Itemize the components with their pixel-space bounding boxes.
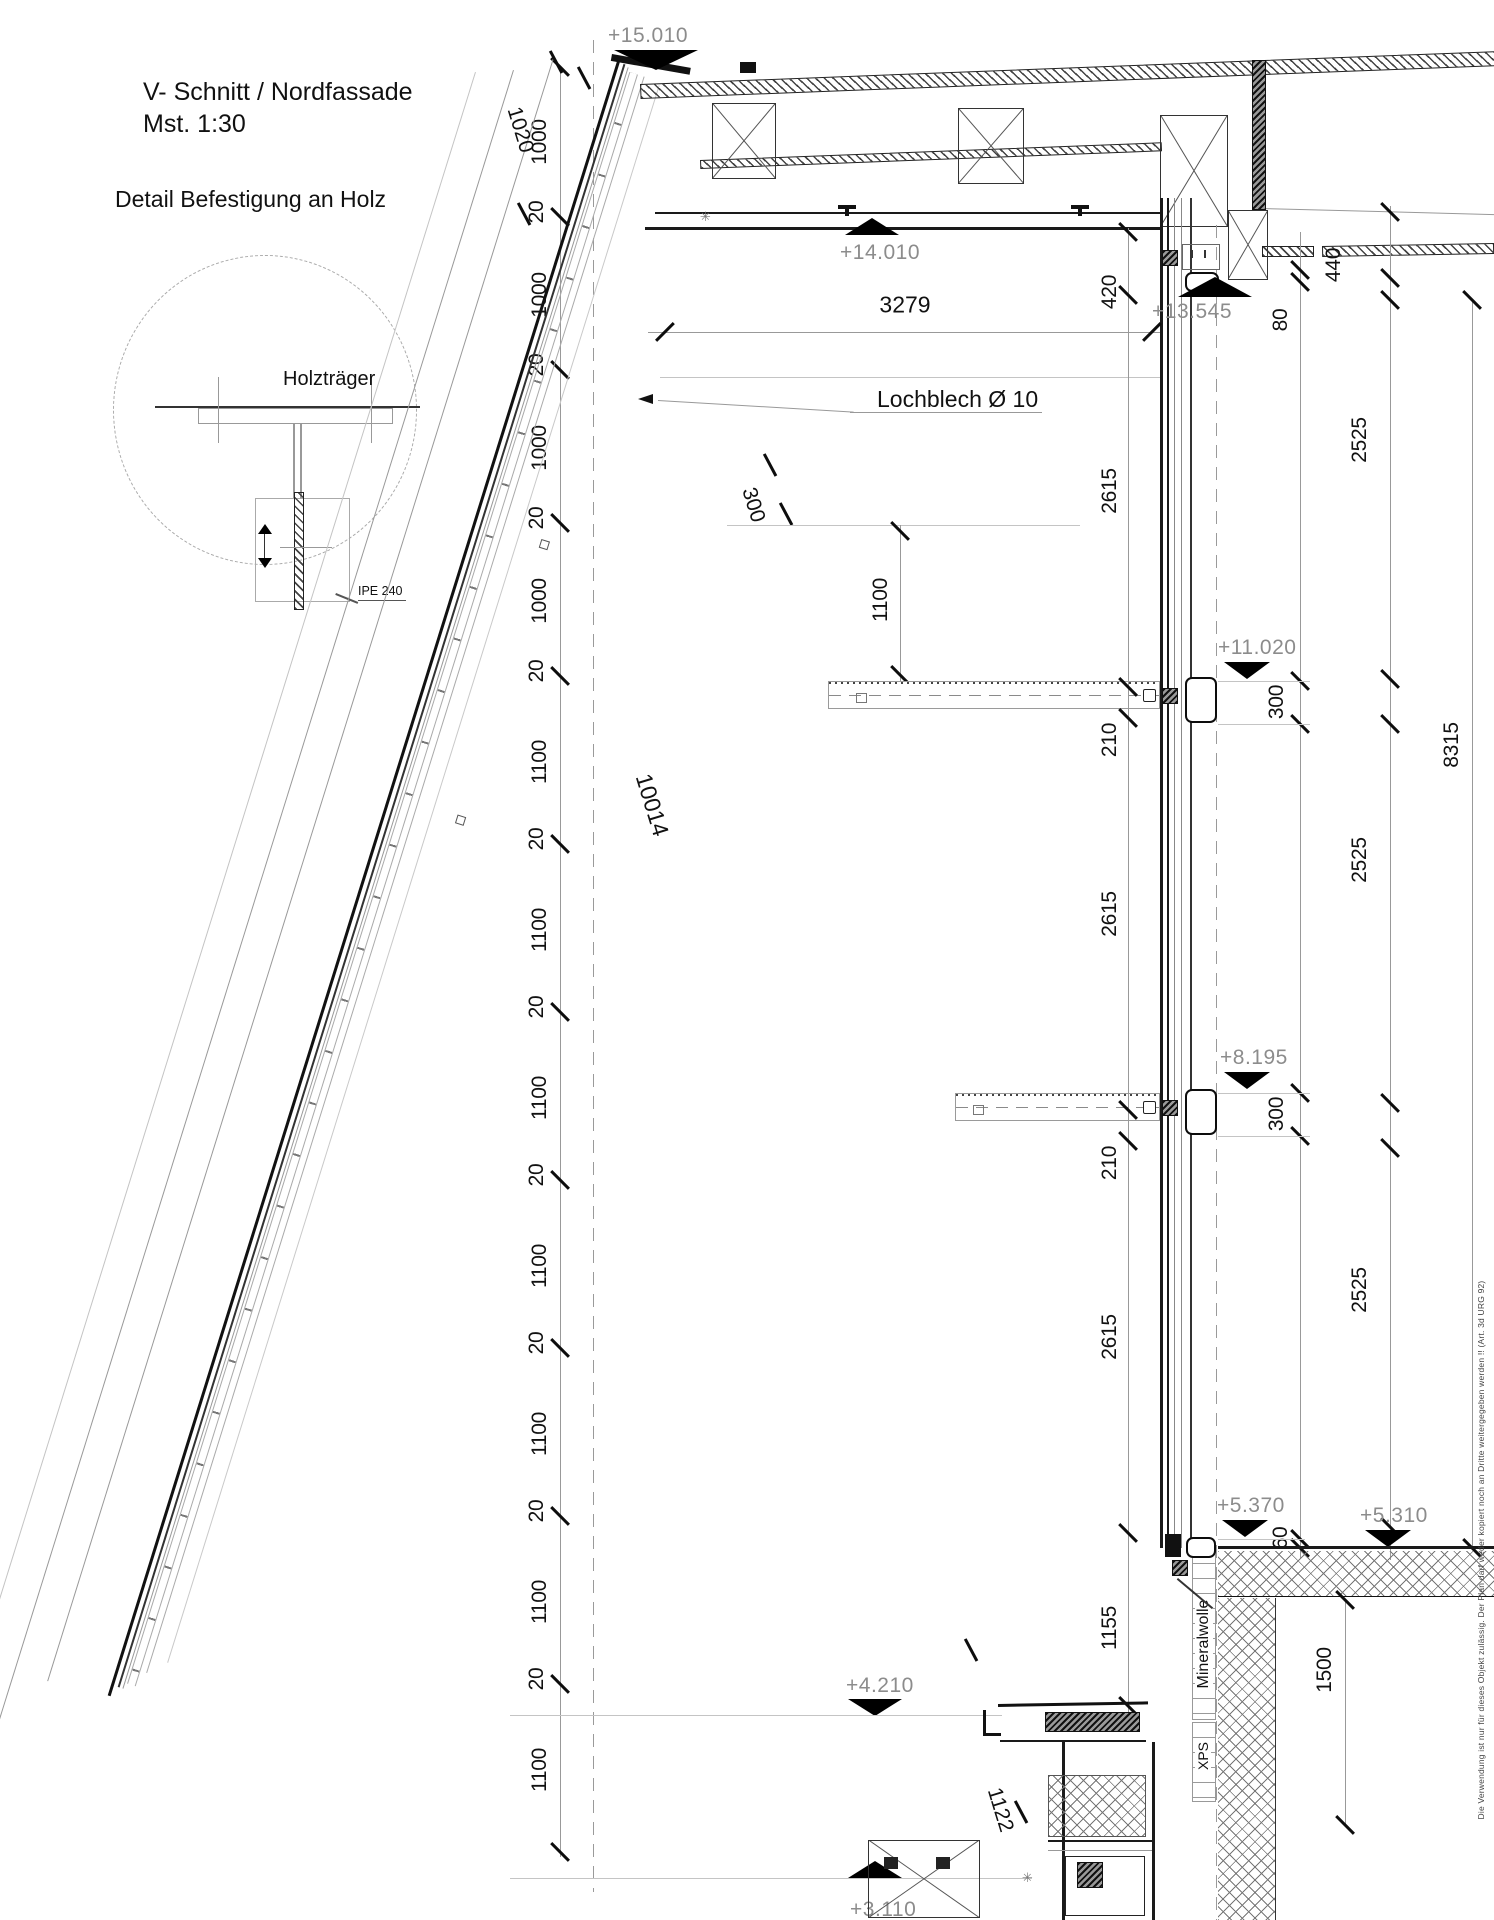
lochblech-label: Lochblech Ø 10 <box>877 386 1038 413</box>
ref-line-1100 <box>727 525 1080 526</box>
roof-line-right <box>1262 208 1494 215</box>
dim-inner: 2615 <box>1098 1314 1122 1360</box>
timber-section <box>712 103 776 179</box>
chain-dim: 1100 <box>528 1580 552 1624</box>
ceiling-clip-stem <box>1078 209 1082 216</box>
eave-block <box>740 62 756 73</box>
chain-dim: 1100 <box>528 1412 552 1456</box>
strut-end-detail <box>973 1105 984 1115</box>
chain-dim: 1100 <box>528 740 552 784</box>
dim-floors: 2525 <box>1348 837 1372 883</box>
level-line <box>1218 681 1310 682</box>
chain-dim: 1100 <box>528 1244 552 1288</box>
base-anchor <box>1077 1862 1103 1888</box>
fixing-rays-icon: ✳ <box>700 209 711 225</box>
section-title: V- Schnitt / Nordfassade <box>143 78 413 107</box>
sill-bottom-line <box>1000 1740 1146 1742</box>
dim-line-left-chain <box>560 67 561 1857</box>
base-block <box>936 1857 950 1869</box>
holztraeger-label: Holzträger <box>283 368 375 391</box>
chain-dim: 20 <box>525 1500 549 1523</box>
strut-bolt <box>1143 1101 1156 1114</box>
base-line <box>1048 1840 1152 1842</box>
elevation-marker <box>845 218 899 235</box>
dim-inner: 2615 <box>1098 891 1122 937</box>
slope-dim-1020: 1020 <box>502 104 539 156</box>
chain-dim: 20 <box>525 1668 549 1691</box>
dim-line-total <box>1472 300 1473 1548</box>
slope-dim-1122: 1122 <box>982 1785 1018 1835</box>
roof-sealing-band <box>640 51 1494 99</box>
xps-label: XPS <box>1195 1739 1211 1773</box>
dim-tick <box>964 1638 979 1662</box>
wallhead-dot <box>1204 250 1206 258</box>
dim-tick <box>763 453 778 477</box>
dim-line-inner <box>1128 228 1129 1715</box>
sill-profile <box>983 1710 1001 1736</box>
level-line <box>1218 1136 1310 1137</box>
elevation-marker <box>1222 1520 1268 1537</box>
floor-bracket <box>1165 1534 1181 1557</box>
fixing-bracket-mid2 <box>1185 1089 1217 1135</box>
timber-section <box>958 108 1024 184</box>
level-line <box>1218 724 1310 725</box>
parapet-hatch-strip <box>1252 60 1266 210</box>
chain-dim: 1000 <box>528 578 552 624</box>
base-timber-section <box>868 1840 980 1918</box>
wallhead-hatch-square <box>1162 250 1178 266</box>
level-line-sill <box>510 1715 1002 1716</box>
floor-slab-hatch <box>1218 1551 1494 1597</box>
dim-1100: 1100 <box>869 578 893 622</box>
dim-1500: 1500 <box>1313 1647 1337 1693</box>
dim-tick <box>779 502 794 526</box>
dim-inner: 210 <box>1098 1146 1122 1180</box>
strut-hatch-square <box>1162 1100 1178 1116</box>
slab-top-line <box>1218 1546 1494 1549</box>
level-line <box>1218 1093 1310 1094</box>
detail-axis-line <box>280 547 332 548</box>
strut-upper <box>828 681 1160 709</box>
vent-square <box>539 539 550 550</box>
strut-lower <box>955 1093 1160 1121</box>
chain-dim: 20 <box>525 996 549 1019</box>
chain-dim: 1100 <box>528 1076 552 1120</box>
chain-dim: 20 <box>525 828 549 851</box>
base-line-2 <box>1048 1850 1152 1851</box>
base-masonry-hatch <box>1048 1775 1146 1837</box>
dim-floors: 2525 <box>1348 1267 1372 1313</box>
elevation-marker <box>1224 1072 1270 1089</box>
elevation-marker <box>848 1699 902 1716</box>
ceiling-line-lower <box>645 227 1162 230</box>
drawing-canvas: V- Schnitt / Nordfassade Mst. 1:30 Detai… <box>0 0 1494 1920</box>
dim-small: 300 <box>1265 685 1289 719</box>
axis-dashed-left <box>593 40 594 1892</box>
strut-end-detail <box>856 693 867 703</box>
wall-below-hatch <box>1218 1598 1276 1920</box>
ipe-underline <box>358 600 406 601</box>
sill-hatch-band <box>1045 1712 1140 1732</box>
lochblech-arrow-icon <box>638 394 653 404</box>
elevation-label: +5.310 <box>1360 1504 1428 1528</box>
slope-dim-300: 300 <box>736 485 769 526</box>
detail-title: Detail Befestigung an Holz <box>115 186 386 213</box>
ceiling-line-upper <box>655 212 1160 214</box>
base-block <box>884 1857 898 1869</box>
ceiling-clip-stem <box>845 209 849 216</box>
dim-line-1500 <box>1345 1600 1346 1826</box>
fixing-rays-icon: ✳ <box>1022 1870 1033 1886</box>
fixing-bracket-floor <box>1186 1537 1216 1558</box>
chain-dim: 20 <box>525 660 549 683</box>
timber-post <box>1160 115 1228 227</box>
wall-line-2 <box>1167 198 1169 1548</box>
detail-stem-left <box>293 424 295 499</box>
elevation-label: +8.195 <box>1220 1046 1288 1070</box>
elevation-label: +13.545 <box>1152 300 1232 324</box>
axis-dashed-right <box>1216 225 1217 1920</box>
dim-line-1100 <box>900 525 901 681</box>
base-wall-line-right <box>1152 1742 1155 1920</box>
wallhead-dot <box>1191 250 1193 258</box>
ipe-label: IPE 240 <box>358 584 402 598</box>
detail-tick-left <box>218 377 219 443</box>
lochblech-leader <box>658 400 854 413</box>
detail-stem-right <box>300 424 302 499</box>
dim-line-floors <box>1390 206 1391 1560</box>
detail-arrow-up <box>258 524 272 534</box>
dim-small: 80 <box>1269 309 1293 332</box>
elevation-marker <box>1224 662 1270 679</box>
chain-dim: 20 <box>525 507 549 530</box>
dim-tick <box>577 66 592 90</box>
level-line <box>660 377 1160 378</box>
dim-8315: 8315 <box>1440 722 1464 768</box>
mineralwolle-label: Mineralwolle <box>1195 1597 1213 1692</box>
dim-floors: 440 <box>1322 248 1346 282</box>
elevation-label: +5.370 <box>1217 1494 1285 1518</box>
strut-hatch-square <box>1162 688 1178 704</box>
detail-plate <box>198 408 393 424</box>
chain-dim: 1100 <box>528 908 552 952</box>
fixing-bracket-mid1 <box>1185 677 1217 723</box>
elevation-label: +4.210 <box>846 1674 914 1698</box>
elevation-marker <box>1365 1530 1411 1547</box>
level-line <box>1218 1539 1305 1540</box>
dim-inner: 2615 <box>1098 468 1122 514</box>
copyright-note: Die Verwendung ist nur für dieses Objekt… <box>1476 1281 1486 1820</box>
dim-small: 300 <box>1265 1097 1289 1131</box>
dim-floors: 2525 <box>1348 417 1372 463</box>
dim-line-3279 <box>648 332 1160 333</box>
dim-inner: 1155 <box>1098 1606 1122 1650</box>
wall-line-3 <box>1174 198 1175 1548</box>
elevation-label: +14.010 <box>840 241 920 265</box>
detail-arrow-down <box>258 558 272 568</box>
wallhead-detail-box <box>1182 244 1220 270</box>
lochblech-underline <box>850 412 1042 413</box>
elevation-marker <box>614 50 698 70</box>
detail-arrow-line <box>264 534 265 558</box>
detail-steel-plate <box>294 492 304 610</box>
chain-dim: 1100 <box>528 1748 552 1792</box>
elevation-label: +15.010 <box>608 24 688 48</box>
dim-inner: 420 <box>1098 275 1122 309</box>
elevation-marker <box>1178 277 1252 297</box>
chain-dim: 20 <box>525 1332 549 1355</box>
dim-3279: 3279 <box>879 292 930 319</box>
chain-dim: 20 <box>525 1164 549 1187</box>
roof-band-right-2 <box>1322 243 1494 257</box>
vent-square <box>455 815 466 826</box>
floor-hatch-square <box>1172 1560 1188 1576</box>
scale-label: Mst. 1:30 <box>143 110 246 139</box>
roof-band-right-1 <box>1262 246 1314 257</box>
wall-line-5 <box>1190 198 1192 1548</box>
slope-dim-10014: 10014 <box>630 770 675 839</box>
wall-line-1 <box>1160 198 1163 1548</box>
wall-line-4 <box>1181 198 1182 1548</box>
elevation-label: +11.020 <box>1218 636 1296 660</box>
dim-line-small <box>1300 232 1301 1558</box>
timber-head <box>1228 210 1268 280</box>
dim-inner: 210 <box>1098 723 1122 757</box>
strut-bolt <box>1143 689 1156 702</box>
